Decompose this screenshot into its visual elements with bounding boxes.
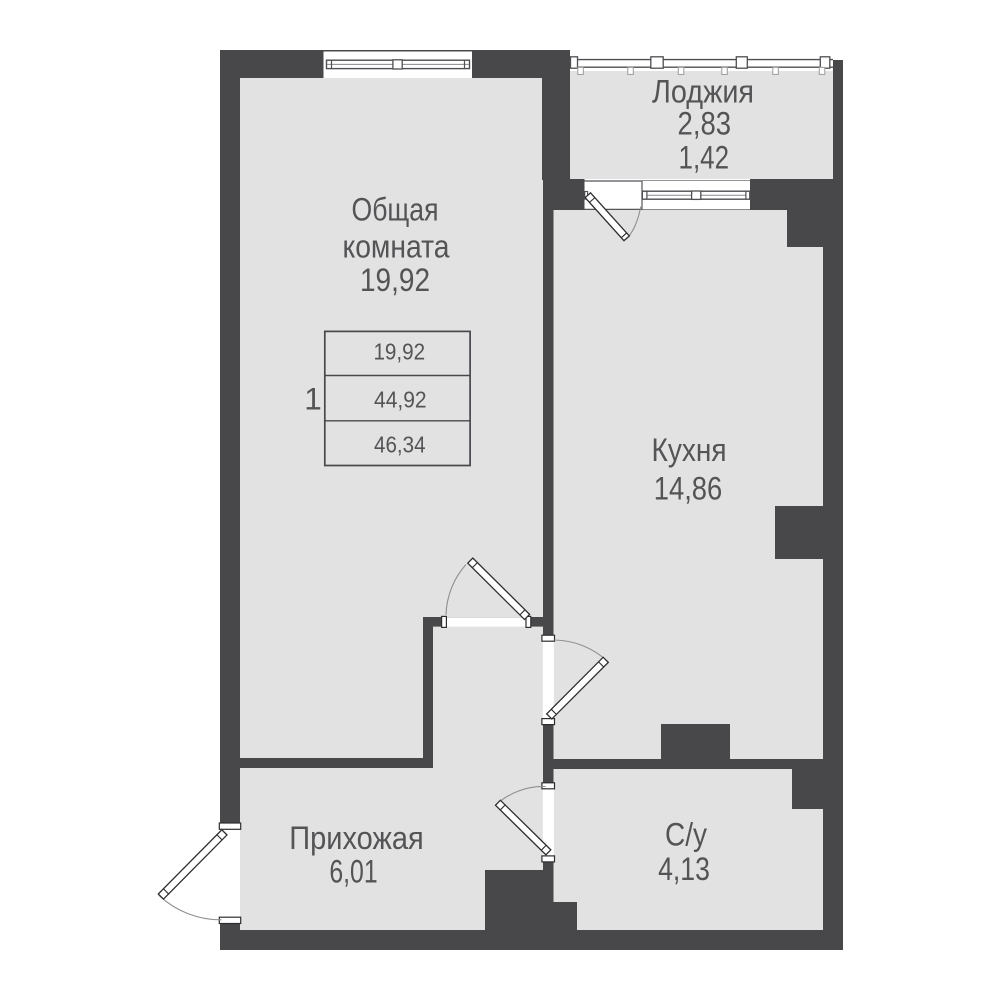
svg-text:Прихожая: Прихожая — [289, 820, 423, 856]
svg-text:1,42: 1,42 — [679, 140, 730, 176]
svg-text:2,83: 2,83 — [678, 106, 732, 142]
svg-text:44,92: 44,92 — [374, 386, 427, 412]
svg-text:Общая: Общая — [352, 192, 439, 228]
svg-text:комната: комната — [343, 229, 450, 265]
svg-text:1: 1 — [304, 380, 322, 416]
svg-text:6,01: 6,01 — [329, 854, 377, 890]
svg-text:19,92: 19,92 — [373, 338, 425, 364]
svg-text:14,86: 14,86 — [654, 471, 723, 507]
svg-text:Кухня: Кухня — [652, 432, 727, 468]
svg-text:19,92: 19,92 — [360, 262, 430, 298]
svg-text:46,34: 46,34 — [374, 431, 426, 457]
svg-text:4,13: 4,13 — [658, 851, 710, 887]
svg-text:Лоджия: Лоджия — [652, 74, 754, 110]
svg-text:С/у: С/у — [665, 817, 707, 853]
